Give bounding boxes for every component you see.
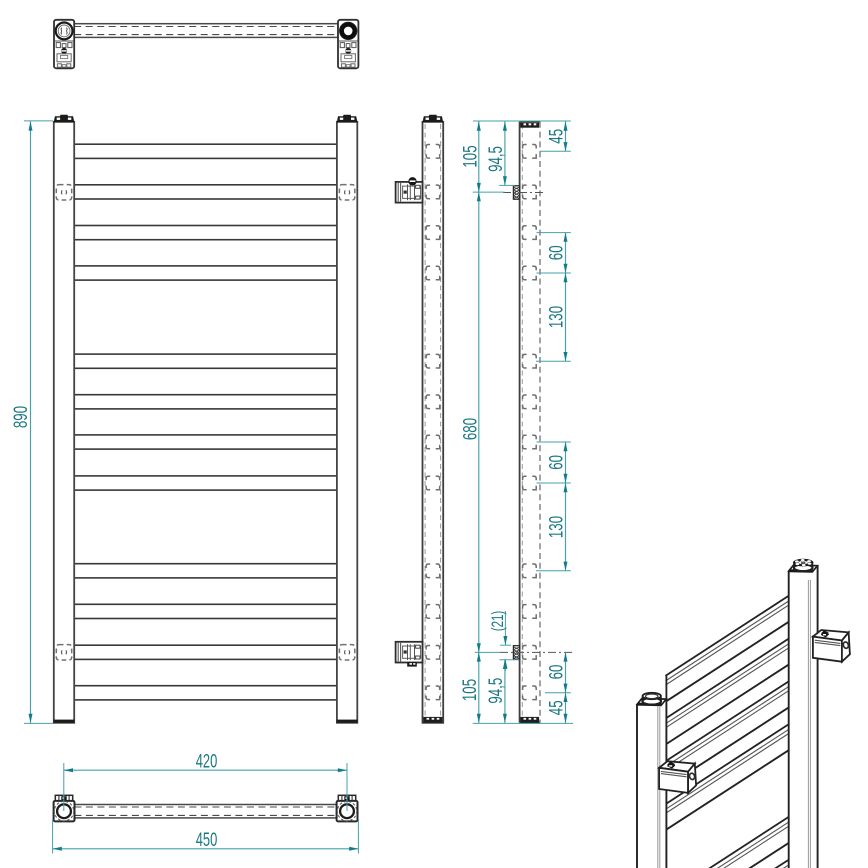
svg-text:680: 680 bbox=[460, 418, 481, 440]
svg-text:105: 105 bbox=[460, 679, 481, 701]
svg-text:60: 60 bbox=[546, 245, 567, 260]
svg-text:(21): (21) bbox=[489, 611, 508, 632]
svg-text:94,5: 94,5 bbox=[486, 146, 507, 172]
svg-text:420: 420 bbox=[196, 751, 218, 772]
svg-text:130: 130 bbox=[546, 516, 567, 538]
svg-text:450: 450 bbox=[196, 830, 218, 851]
svg-text:130: 130 bbox=[546, 306, 567, 328]
svg-text:94,5: 94,5 bbox=[486, 678, 507, 704]
svg-text:60: 60 bbox=[546, 455, 567, 470]
svg-text:105: 105 bbox=[460, 145, 481, 167]
svg-text:60: 60 bbox=[546, 665, 567, 680]
svg-text:45: 45 bbox=[546, 129, 567, 144]
svg-text:45: 45 bbox=[546, 700, 567, 715]
svg-text:890: 890 bbox=[11, 406, 32, 428]
